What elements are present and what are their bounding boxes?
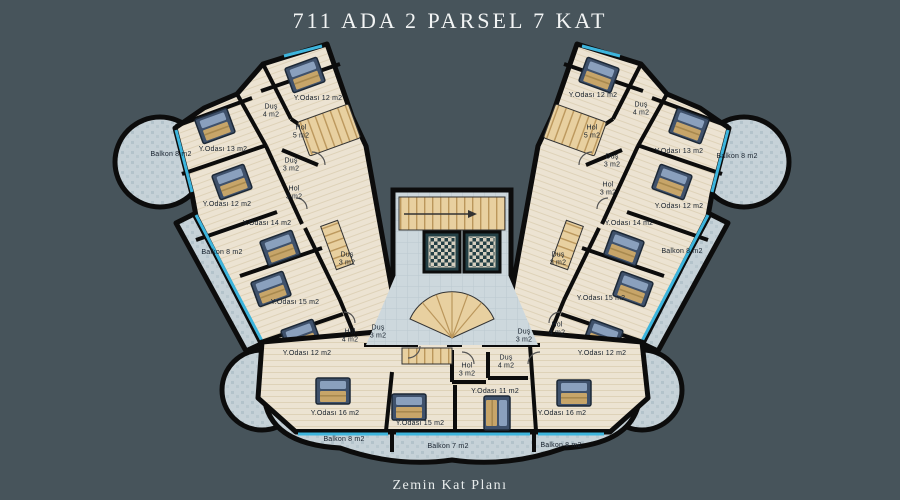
bed-icon	[484, 396, 510, 430]
bed-icon	[392, 394, 426, 420]
elevator-right-icon	[464, 232, 500, 272]
bed-icon	[316, 378, 350, 404]
elevator-left-icon	[424, 232, 460, 272]
floor-caption: Zemin Kat Planı	[0, 478, 900, 494]
floor-plan-page: 711 ADA 2 PARSEL 7 KAT	[0, 0, 900, 500]
central-core	[366, 190, 538, 345]
staircase-icon	[402, 348, 452, 364]
floor-plan-drawing	[0, 0, 900, 500]
bed-icon	[557, 380, 591, 406]
bottom-band	[258, 330, 648, 452]
plan-title: 711 ADA 2 PARSEL 7 KAT	[0, 8, 900, 34]
